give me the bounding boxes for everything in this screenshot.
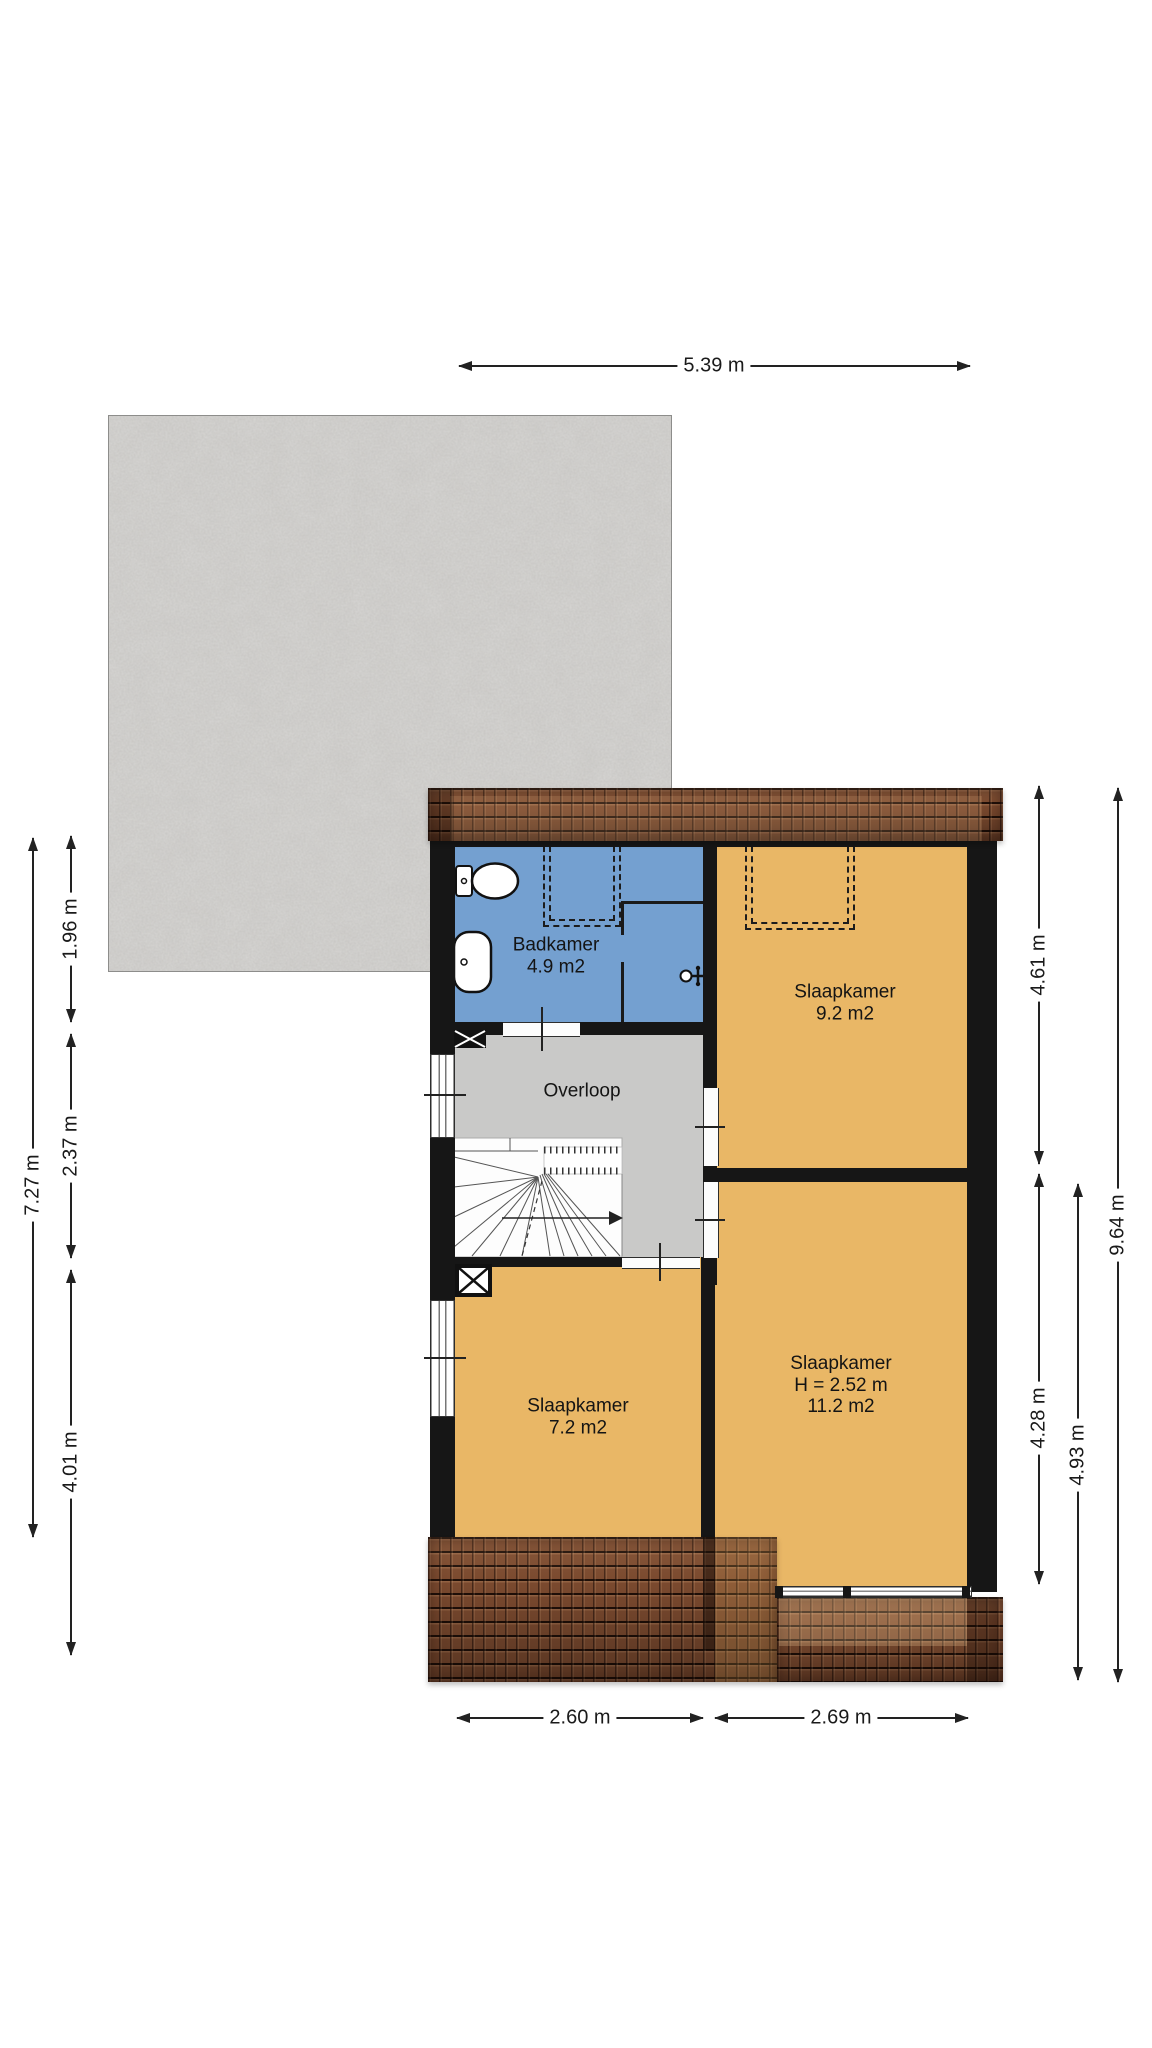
wall-ghost-under-roof [703, 1537, 715, 1650]
room-label-badkamer: Badkamer 4.9 m2 [513, 935, 600, 978]
window-post [962, 1586, 970, 1598]
dim-label-left-lower: 4.01 m [60, 1425, 83, 1498]
dim-label-left-total: 7.27 m [22, 1148, 45, 1221]
room-area: 7.2 m2 [527, 1417, 628, 1439]
room-area: 11.2 m2 [790, 1396, 891, 1418]
shower-partition-line [621, 962, 624, 1022]
window-symbol [430, 1300, 455, 1417]
room-name: Slaapkamer [527, 1396, 628, 1418]
window-center-tick [424, 1094, 466, 1096]
room-label-slaapkamer-72: Slaapkamer 7.2 m2 [527, 1396, 628, 1439]
dim-label-bottom-left: 2.60 m [543, 1707, 616, 1730]
door-opening-symbol [622, 1257, 700, 1269]
room-label-overloop: Overloop [543, 1080, 620, 1102]
door-center-tick [541, 1007, 543, 1051]
room-area: 4.9 m2 [513, 956, 600, 978]
window-symbol [777, 1586, 972, 1598]
dim-label-right-total: 9.64 m [1107, 1188, 1130, 1261]
window-symbol [430, 1054, 455, 1138]
room-name: Overloop [543, 1080, 620, 1102]
room-height: H = 2.52 m [790, 1374, 891, 1396]
dim-label-right-upper: 4.61 m [1028, 928, 1051, 1001]
shower-partition-line [621, 901, 624, 935]
window-post [843, 1586, 851, 1598]
wall-west-upper [430, 845, 455, 1055]
dim-label-bottom-right: 2.69 m [804, 1707, 877, 1730]
dim-line-right-lower [1038, 1174, 1040, 1584]
room-label-slaapkamer-92: Slaapkamer 9.2 m2 [794, 982, 895, 1025]
room-name: Slaapkamer [790, 1353, 891, 1375]
sink-icon [451, 928, 495, 996]
roof-highlight [779, 1598, 967, 1646]
room-area: 9.2 m2 [794, 1003, 895, 1025]
dim-label-right-lower-outer: 4.93 m [1067, 1418, 1090, 1491]
wall-between-bedrooms-east [715, 1168, 997, 1182]
dormer-dashed-outline [745, 846, 855, 930]
wall-badkamer-south-right [580, 1022, 717, 1035]
dim-label-right-lower: 4.28 m [1028, 1381, 1051, 1454]
wall-badkamer-east [703, 845, 717, 1088]
wall-west-lower [430, 1415, 455, 1537]
room-name: Slaapkamer [794, 982, 895, 1004]
room-name: Badkamer [513, 935, 600, 957]
flue-box-icon [453, 1029, 487, 1049]
floorplan-page: Badkamer 4.9 m2 Slaapkamer 9.2 m2 Overlo… [0, 0, 1152, 2048]
dormer-dashed-outline [543, 846, 621, 927]
wall-west-middle [430, 1136, 455, 1300]
toilet-icon [453, 858, 521, 902]
roof-highlight [450, 796, 982, 841]
flue-box-icon [455, 1264, 492, 1297]
door-center-tick [695, 1126, 725, 1128]
door-center-tick [659, 1243, 661, 1281]
wall-between-bedrooms-south [701, 1257, 715, 1537]
dim-label-top-width: 5.39 m [677, 355, 750, 378]
window-center-tick [424, 1357, 466, 1359]
wall-ghost-under-roof [967, 1597, 997, 1682]
door-center-tick [695, 1219, 725, 1221]
dim-label-left-middle: 2.37 m [60, 1109, 83, 1182]
shower-partition-line [622, 901, 705, 904]
roof-edge-shade [428, 788, 454, 841]
window-post [775, 1586, 783, 1598]
roof-over-floor-tint [715, 1537, 777, 1682]
room-label-slaapkamer-112: Slaapkamer H = 2.52 m 11.2 m2 [790, 1353, 891, 1418]
wall-east [967, 845, 997, 1592]
dim-label-left-upper: 1.96 m [60, 892, 83, 965]
stairs-icon [452, 1135, 624, 1259]
